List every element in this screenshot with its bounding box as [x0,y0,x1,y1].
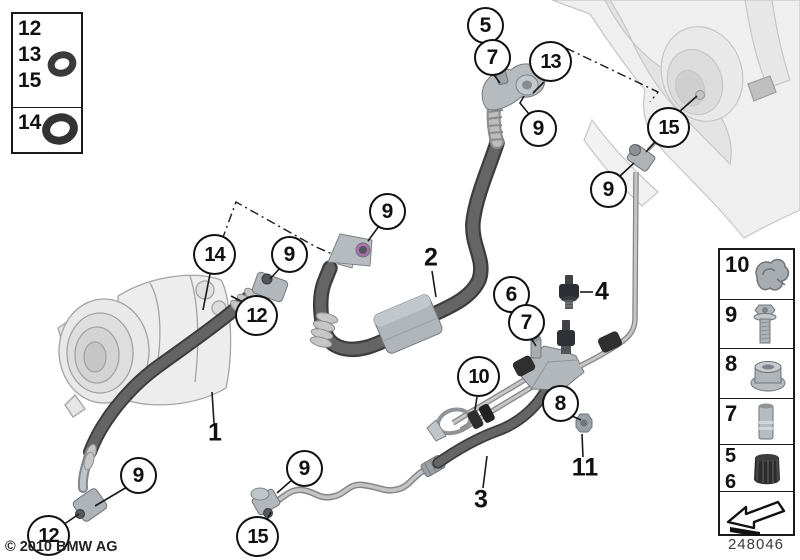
legend-row-direction-arrow[interactable] [720,492,793,538]
callout-14[interactable]: 14 [193,234,236,275]
callout-15-right[interactable]: 15 [647,107,690,148]
diagram-number: 248046 [716,536,796,553]
line3-fitting-bolt [630,145,641,156]
legend-label: 5 [725,445,736,471]
callout-9-line3[interactable]: 9 [286,450,323,487]
callout-7-mid[interactable]: 7 [508,304,545,341]
o-ring-large-icon [41,110,79,153]
legend-o-rings: 12 13 15 14 [11,12,83,154]
legend-hardware: 10 9 8 [718,248,795,536]
mounted-sensor [557,320,575,354]
part-label-1: 1 [208,421,222,446]
flange-nut-icon [745,353,791,400]
legend-row-o-ring-small[interactable]: 12 13 15 [13,14,81,108]
legend-row-cap[interactable]: 5 6 [720,445,793,492]
legend-row-screw[interactable]: 9 [720,300,793,349]
callout-9-hose1[interactable]: 9 [120,457,157,494]
callout-7-top[interactable]: 7 [474,39,511,76]
spacer-sleeve-icon [751,401,781,448]
legend-label: 8 [725,351,737,377]
copyright-text: © 2010 BMW AG [5,539,117,555]
pressure-sensor-4 [559,275,579,309]
callout-13[interactable]: 13 [529,41,572,82]
legend-label: 14 [18,110,41,136]
hose2-port-bolt [359,246,367,254]
part-label-2: 2 [424,246,438,271]
o-ring-small-icon [47,50,77,83]
port-13 [522,81,532,90]
legend-label: 10 [725,252,749,278]
part-label-3: 3 [474,488,488,513]
callout-8[interactable]: 8 [542,385,579,422]
screw-icon [745,302,785,352]
locator-dash-lines [222,48,658,259]
legend-label: 15 [18,68,41,94]
part-label-11: 11 [572,456,598,481]
callout-9-compressor[interactable]: 9 [271,236,308,273]
parts-diagram-page: 5 7 13 9 15 9 14 9 12 9 6 7 10 8 9 12 9 … [0,0,800,560]
hex-nut-11 [576,414,592,432]
legend-label: 12 [18,16,41,42]
hose1-end-bolt [76,510,85,519]
callout-9-mid[interactable]: 9 [369,193,406,230]
ac-compressor [58,275,231,417]
legend-row-flange-nut[interactable]: 8 [720,349,793,399]
callout-12-compressor[interactable]: 12 [235,295,278,336]
legend-label: 13 [18,42,41,68]
legend-row-o-ring-large[interactable]: 14 [13,108,81,152]
callout-10[interactable]: 10 [457,356,500,397]
direction-arrow-icon [720,494,790,541]
legend-row-clip[interactable]: 10 [720,250,793,300]
part-label-4: 4 [595,280,609,305]
callout-15-bottom[interactable]: 15 [236,516,279,557]
callout-5[interactable]: 5 [467,7,504,44]
body-grommet [696,91,705,100]
legend-label: 7 [725,401,737,427]
callout-9-right[interactable]: 9 [590,171,627,208]
pipe-clip-icon [747,253,791,302]
sealing-cap-icon [745,447,791,496]
callout-9-top[interactable]: 9 [520,110,557,147]
legend-row-sleeve[interactable]: 7 [720,399,793,445]
legend-label: 9 [725,302,737,328]
